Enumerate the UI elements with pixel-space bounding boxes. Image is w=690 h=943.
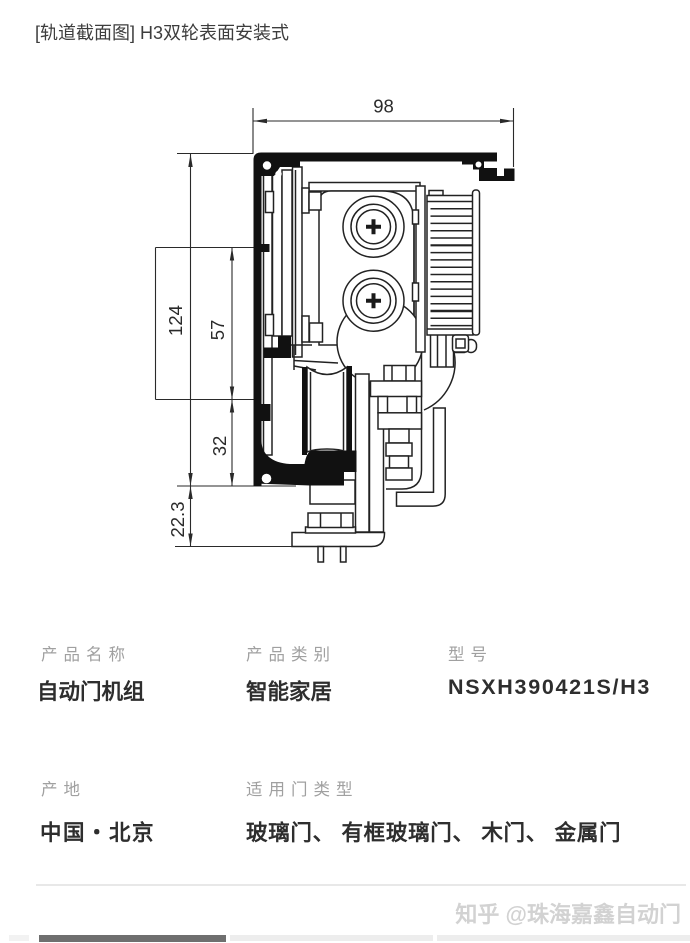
svg-text:124: 124 <box>165 305 186 336</box>
svg-text:98: 98 <box>373 96 394 117</box>
svg-text:22.3: 22.3 <box>167 501 188 537</box>
svg-text:32: 32 <box>209 436 230 457</box>
svg-text:57: 57 <box>207 320 228 341</box>
